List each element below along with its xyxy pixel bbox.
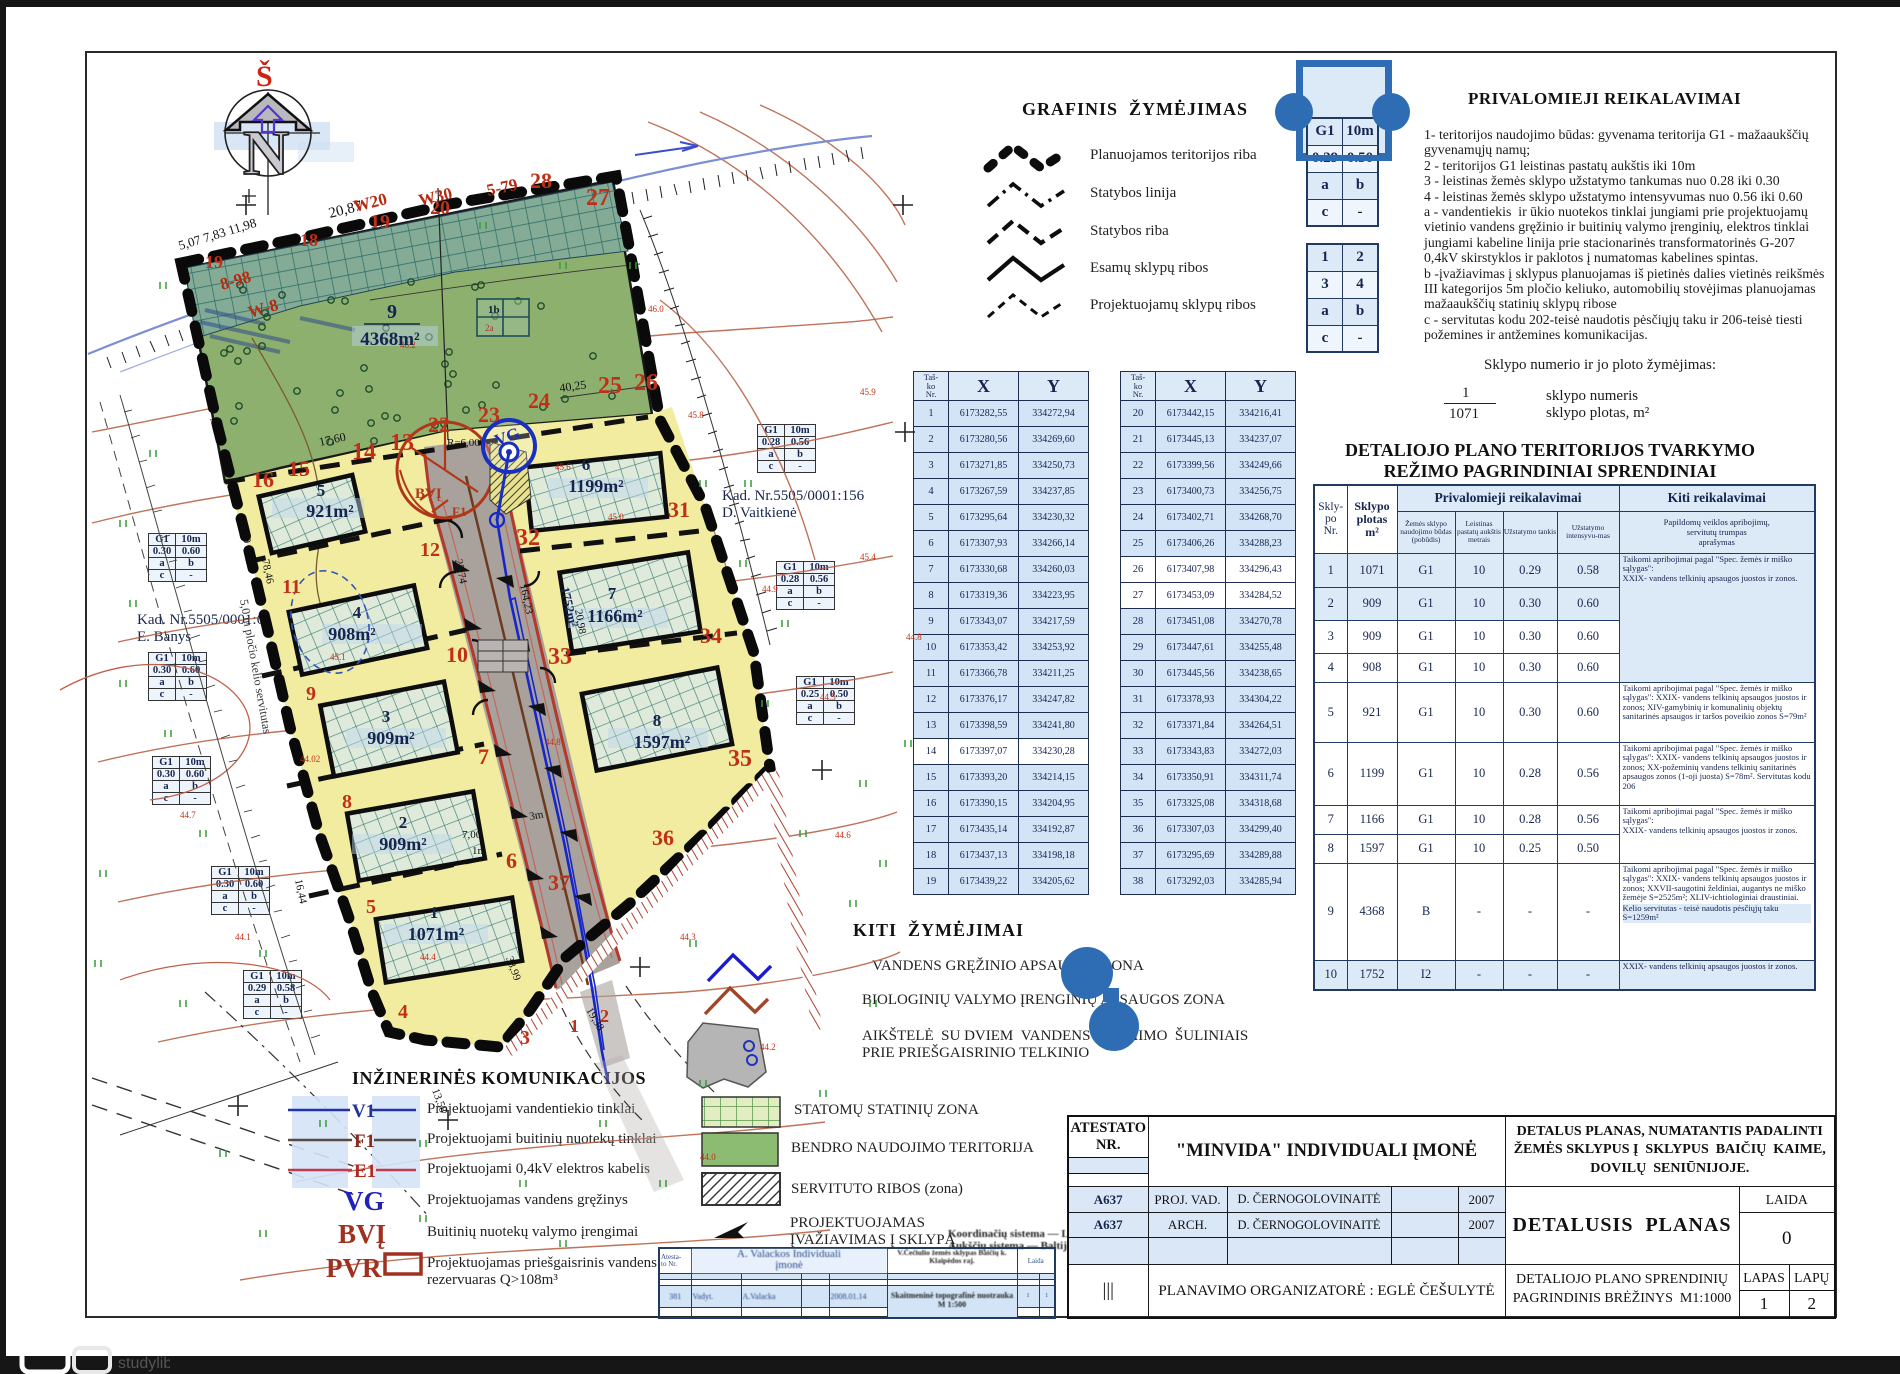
svg-text:2: 2 xyxy=(600,1006,609,1026)
svg-text:5: 5 xyxy=(317,481,326,500)
svg-text:46.0: 46.0 xyxy=(648,304,664,314)
svg-text:1597m²: 1597m² xyxy=(634,732,690,752)
svg-text:9: 9 xyxy=(306,683,316,705)
svg-text:1b: 1b xyxy=(488,304,500,316)
svg-text:44.1: 44.1 xyxy=(235,932,251,942)
svg-text:34: 34 xyxy=(700,623,722,648)
svg-text:8: 8 xyxy=(653,711,662,730)
svg-text:44.6: 44.6 xyxy=(835,830,851,840)
svg-text:4368m²: 4368m² xyxy=(360,329,420,350)
svg-text:studylib: studylib xyxy=(118,1355,170,1372)
svg-text:4: 4 xyxy=(353,603,362,622)
svg-text:PVR: PVR xyxy=(326,1253,382,1283)
svg-text:3m: 3m xyxy=(528,809,544,823)
svg-text:19: 19 xyxy=(205,252,223,272)
svg-text:25: 25 xyxy=(598,373,622,399)
svg-text:19: 19 xyxy=(370,211,390,233)
svg-text:13,58: 13,58 xyxy=(429,1087,449,1115)
svg-text:45.4: 45.4 xyxy=(860,552,876,562)
svg-text:44.02: 44.02 xyxy=(300,754,320,764)
svg-text:37: 37 xyxy=(548,870,570,895)
svg-text:14: 14 xyxy=(352,439,376,465)
svg-text:F1: F1 xyxy=(354,1131,375,1152)
svg-text:31: 31 xyxy=(668,497,690,522)
svg-text:N: N xyxy=(243,117,289,188)
svg-text:33: 33 xyxy=(548,644,572,670)
svg-text:11: 11 xyxy=(282,576,301,598)
svg-text:45.1: 45.1 xyxy=(330,652,346,662)
svg-text:909m²: 909m² xyxy=(367,728,414,748)
svg-text:BVĮ: BVĮ xyxy=(415,486,442,502)
svg-text:909m²: 909m² xyxy=(379,834,426,854)
svg-text:44.2: 44.2 xyxy=(760,1042,776,1052)
svg-text:1: 1 xyxy=(570,1016,579,1036)
svg-text:44.7: 44.7 xyxy=(180,810,196,820)
svg-text:BVĮ: BVĮ xyxy=(338,1219,386,1249)
svg-text:9: 9 xyxy=(387,301,397,323)
svg-text:18: 18 xyxy=(300,230,318,250)
svg-text:12: 12 xyxy=(420,539,440,561)
svg-text:7: 7 xyxy=(478,744,489,769)
svg-text:7: 7 xyxy=(608,584,617,603)
svg-text:44.3: 44.3 xyxy=(680,932,696,942)
svg-text:3: 3 xyxy=(382,707,391,726)
svg-text:45.9: 45.9 xyxy=(860,387,876,397)
svg-text:V1: V1 xyxy=(352,1101,375,1122)
svg-text:2: 2 xyxy=(399,813,408,832)
svg-text:1: 1 xyxy=(430,903,439,922)
svg-text:3: 3 xyxy=(520,1027,530,1049)
svg-text:44.4: 44.4 xyxy=(420,952,436,962)
svg-text:1m: 1m xyxy=(472,845,487,857)
svg-text:45.6: 45.6 xyxy=(555,462,571,472)
svg-text:15: 15 xyxy=(288,456,310,481)
svg-text:36: 36 xyxy=(652,825,674,850)
svg-text:5: 5 xyxy=(366,896,376,918)
svg-text:6: 6 xyxy=(582,455,591,474)
svg-text:4: 4 xyxy=(398,1001,408,1023)
svg-text:23: 23 xyxy=(478,402,500,427)
svg-text:44.8: 44.8 xyxy=(906,632,922,642)
svg-text:16,44: 16,44 xyxy=(292,878,309,905)
svg-text:R=6,00: R=6,00 xyxy=(447,437,480,449)
svg-text:1199m²: 1199m² xyxy=(568,476,623,496)
svg-text:6: 6 xyxy=(506,848,517,873)
svg-text:16: 16 xyxy=(252,467,274,492)
svg-text:35: 35 xyxy=(728,746,752,772)
svg-text:26: 26 xyxy=(634,370,658,396)
svg-text:F1: F1 xyxy=(452,504,466,519)
svg-text:28: 28 xyxy=(530,168,552,193)
svg-text:1071m²: 1071m² xyxy=(408,924,464,944)
svg-text:7,00: 7,00 xyxy=(462,829,482,841)
svg-text:1166m²: 1166m² xyxy=(587,606,642,626)
svg-text:VG: VG xyxy=(344,1186,385,1216)
svg-text:24: 24 xyxy=(528,388,550,413)
svg-text:44.0: 44.0 xyxy=(700,1152,716,1162)
svg-text:22: 22 xyxy=(428,412,450,437)
svg-text:32: 32 xyxy=(516,525,540,551)
svg-text:45.0: 45.0 xyxy=(608,512,624,522)
svg-text:44.8: 44.8 xyxy=(545,737,561,747)
svg-text:45.8: 45.8 xyxy=(688,410,704,420)
svg-text:10: 10 xyxy=(446,642,468,667)
svg-text:908m²: 908m² xyxy=(328,624,375,644)
svg-text:2a: 2a xyxy=(485,323,494,333)
svg-text:E1: E1 xyxy=(354,1161,376,1182)
svg-text:921m²: 921m² xyxy=(306,501,353,521)
svg-text:8: 8 xyxy=(342,791,352,813)
svg-text:27: 27 xyxy=(586,185,610,211)
svg-text:13: 13 xyxy=(390,430,414,456)
svg-text:44.5: 44.5 xyxy=(820,692,836,702)
svg-text:44.9: 44.9 xyxy=(762,584,778,594)
svg-text:Š: Š xyxy=(256,60,273,93)
